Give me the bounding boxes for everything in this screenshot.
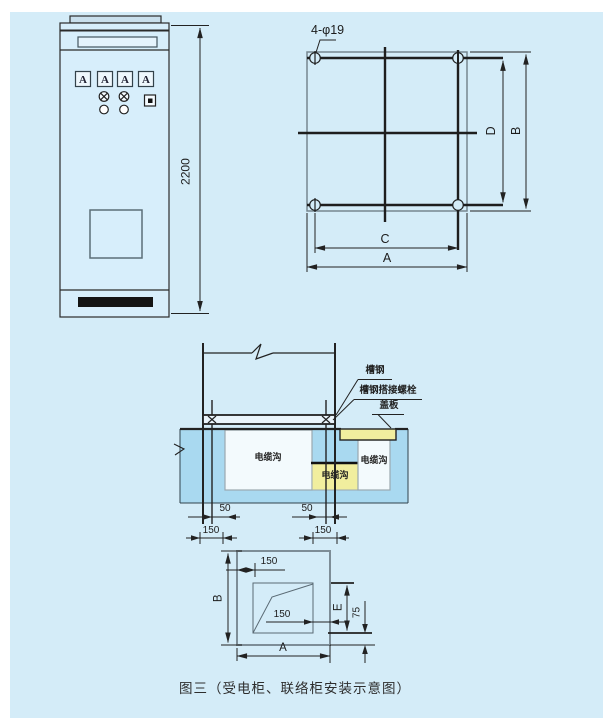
drawing-line [191, 535, 200, 541]
dim-label-150-left: 150 [196, 525, 226, 536]
dim-label-A: A [375, 252, 399, 266]
callout-channel-bolt: 槽钢搭接螺栓 [352, 386, 424, 396]
dim-label-D: D [485, 119, 499, 143]
cabinet-top-cap [70, 16, 161, 23]
dim-label-A2: A [271, 642, 295, 655]
drawing-line [227, 514, 236, 520]
ammeter-letter: A [118, 74, 133, 86]
dim-label-150-inner: 150 [267, 609, 297, 620]
drawing-line [309, 514, 318, 520]
cabinet-body [60, 23, 169, 317]
holes-leader-line [316, 40, 336, 53]
ammeter-letter: A [139, 74, 154, 86]
dim-label-B: B [510, 119, 524, 143]
drawing-line [330, 619, 339, 625]
trench-label-left: 电缆沟 [244, 453, 292, 463]
ammeter-letter: A [98, 74, 113, 86]
drawing-line [304, 535, 313, 541]
anchor-holes [310, 51, 464, 212]
ventilation-grille [78, 297, 153, 307]
foundation-outline [307, 52, 467, 211]
drawing-line [362, 624, 368, 633]
dim-label-50-left: 50 [210, 503, 240, 514]
trench-label-right: 电缆沟 [356, 456, 392, 466]
cable-opening [253, 583, 313, 633]
cover-plate [340, 429, 396, 440]
figure-caption: 图三（受电柜、联络柜安装示意图） [150, 682, 440, 697]
foundation-plan-view [298, 40, 531, 272]
cabinet-header-slot [78, 37, 157, 47]
pilot-light-icon [100, 105, 109, 114]
channel-steel-grid [298, 47, 503, 250]
pilot-light-icon [120, 105, 129, 114]
drawing-line [362, 645, 368, 654]
channel-steel-bar [203, 415, 335, 424]
button-core [148, 99, 153, 104]
drawing-line [304, 619, 313, 625]
ammeter-letter: A [76, 74, 91, 86]
dim-label-150-right: 150 [308, 525, 338, 536]
page: { "caption": "图三（受电柜、联络柜安装示意图）", "colors… [0, 0, 611, 727]
drawing-line [203, 514, 212, 520]
dim-label-C: C [373, 233, 397, 247]
dim-label-E: E [333, 595, 346, 619]
trench-label-middle: 电缆沟 [311, 471, 359, 481]
drawing-canvas [0, 0, 611, 727]
drawing-line [252, 344, 273, 359]
drawing-line [336, 380, 358, 416]
drawing-line [223, 535, 232, 541]
drawing-line [378, 415, 391, 429]
dim-label-75: 75 [352, 601, 363, 625]
dim-label-B2: B [213, 586, 226, 610]
plan-dimensions [307, 52, 531, 272]
drawing-line [237, 567, 246, 573]
drawing-line [246, 567, 255, 573]
cabinet-break-line [203, 344, 335, 359]
callout-cover-plate: 盖板 [366, 401, 412, 411]
anchor-hole [453, 200, 464, 211]
dim-label-50-right: 50 [292, 503, 322, 514]
dim-label-2200: 2200 [179, 152, 192, 192]
drawing-line [337, 535, 346, 541]
callout-channel-steel: 槽钢 [352, 366, 398, 376]
dim-label-150-top: 150 [254, 556, 284, 567]
holes-count-label: 4-φ19 [311, 24, 344, 38]
